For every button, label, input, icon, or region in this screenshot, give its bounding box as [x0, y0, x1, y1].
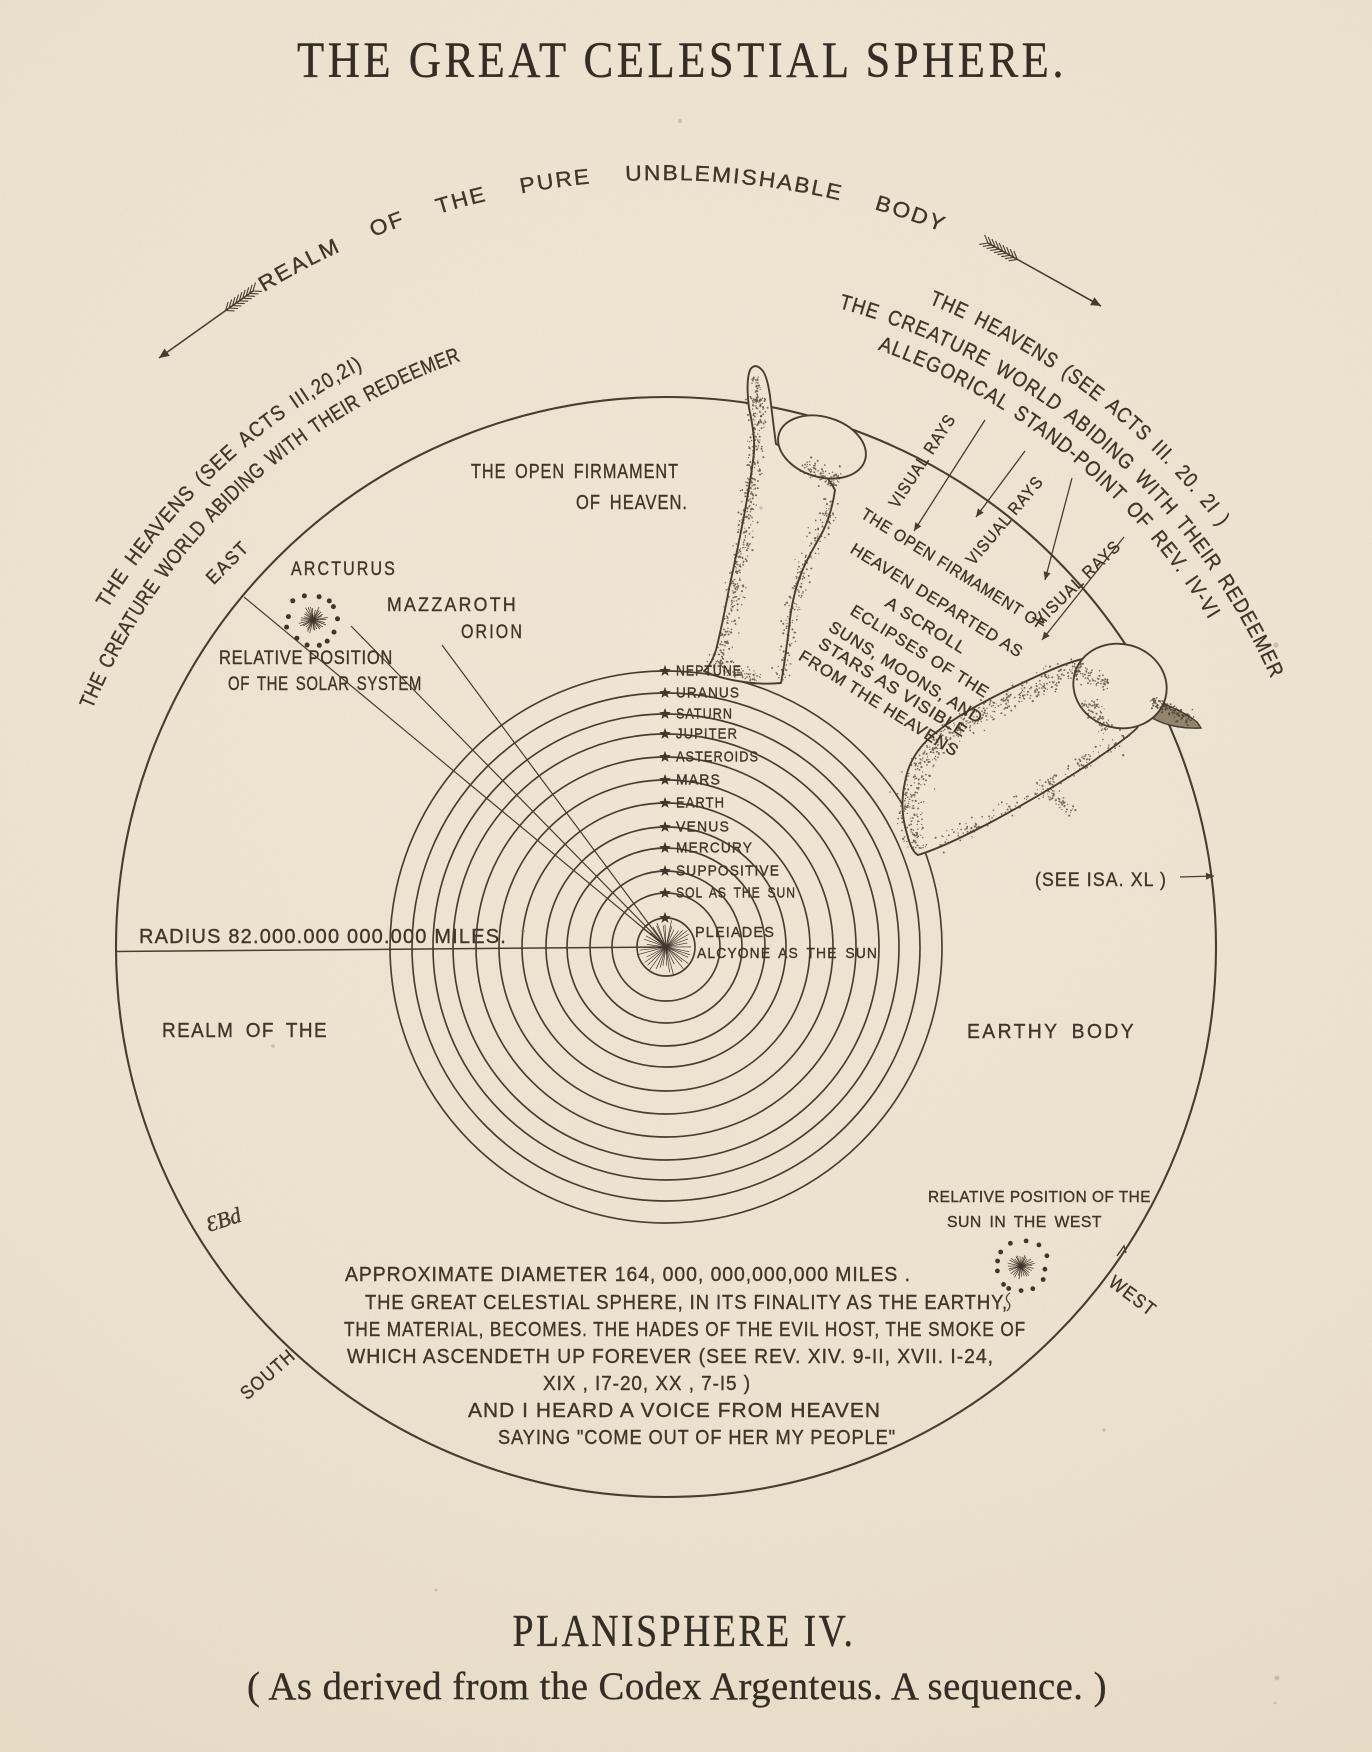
svg-text:MAZZAROTH: MAZZAROTH — [387, 595, 518, 616]
svg-text:SATURN: SATURN — [676, 706, 733, 723]
svg-text:OF THE SOLAR SYSTEM: OF THE SOLAR SYSTEM — [228, 674, 422, 695]
svg-text:REALM OF THE: REALM OF THE — [162, 1020, 328, 1042]
svg-text:EARTHY BODY: EARTHY BODY — [967, 1021, 1136, 1043]
svg-text:PLEIADES: PLEIADES — [695, 924, 775, 941]
svg-text:SAYING "COME OUT OF HER MY PEO: SAYING "COME OUT OF HER MY PEOPLE" — [498, 1427, 896, 1449]
svg-text:WHICH ASCENDETH UP FOREVER (S: WHICH ASCENDETH UP FOREVER (SEE REV. XIV… — [347, 1346, 994, 1368]
svg-text:APPROXIMATE DIAMETER 164, 000: APPROXIMATE DIAMETER 164, 000, 000,000,0… — [345, 1264, 911, 1286]
svg-text:RELATIVE POSITION OF THE: RELATIVE POSITION OF THE — [928, 1189, 1151, 1206]
svg-text:MERCURY: MERCURY — [676, 840, 753, 857]
svg-text:NEPTUNE: NEPTUNE — [676, 663, 742, 680]
svg-text:THE OPEN FIRMAMENT: THE OPEN FIRMAMENT — [471, 461, 679, 483]
svg-text:(SEE ISA. XL ): (SEE ISA. XL ) — [1035, 870, 1167, 891]
svg-text:URANUS: URANUS — [676, 685, 740, 702]
svg-text:MARS: MARS — [676, 772, 721, 789]
svg-text:ORION: ORION — [461, 622, 524, 643]
svg-text:XIX , I7-20, XX , 7-I5 ): XIX , I7-20, XX , 7-I5 ) — [543, 1373, 751, 1395]
svg-text:ASTEROIDS: ASTEROIDS — [676, 749, 759, 766]
svg-text:JUPITER: JUPITER — [676, 726, 738, 743]
svg-text:ALCYONE AS THE SUN: ALCYONE AS THE SUN — [697, 945, 878, 962]
svg-text:OF HEAVEN.: OF HEAVEN. — [576, 492, 688, 514]
svg-text:AND I HEARD A VOICE FROM HEA: AND I HEARD A VOICE FROM HEAVEN — [468, 1400, 881, 1422]
svg-text:SOL AS THE SUN: SOL AS THE SUN — [676, 885, 796, 902]
svg-text:ARCTURUS: ARCTURUS — [291, 559, 397, 580]
svg-text:EARTH: EARTH — [676, 795, 725, 812]
svg-text:( As derived from the Codex Ar: ( As derived from the Codex Argenteus. A… — [247, 1665, 1107, 1708]
svg-text:PLANISPHERE IV.: PLANISPHERE IV. — [513, 1606, 856, 1656]
svg-text:SUN IN THE WEST: SUN IN THE WEST — [947, 1214, 1102, 1231]
svg-text:RADIUS 82.000.000 000.000 MILE: RADIUS 82.000.000 000.000 MILES. — [139, 926, 507, 948]
svg-text:VENUS: VENUS — [676, 819, 730, 836]
svg-text:SUPPOSITIVE: SUPPOSITIVE — [676, 863, 780, 880]
svg-text:RELATIVE POSITION: RELATIVE POSITION — [219, 648, 393, 669]
svg-text:THE GREAT CELESTIAL SPHERE, IN: THE GREAT CELESTIAL SPHERE, IN ITS FINAL… — [365, 1292, 1008, 1314]
svg-text:THE GREAT CELESTIAL SPHERE.: THE GREAT CELESTIAL SPHERE. — [297, 33, 1067, 89]
svg-text:THE MATERIAL, BECOMES. THE HAD: THE MATERIAL, BECOMES. THE HADES OF THE … — [344, 1319, 1026, 1341]
